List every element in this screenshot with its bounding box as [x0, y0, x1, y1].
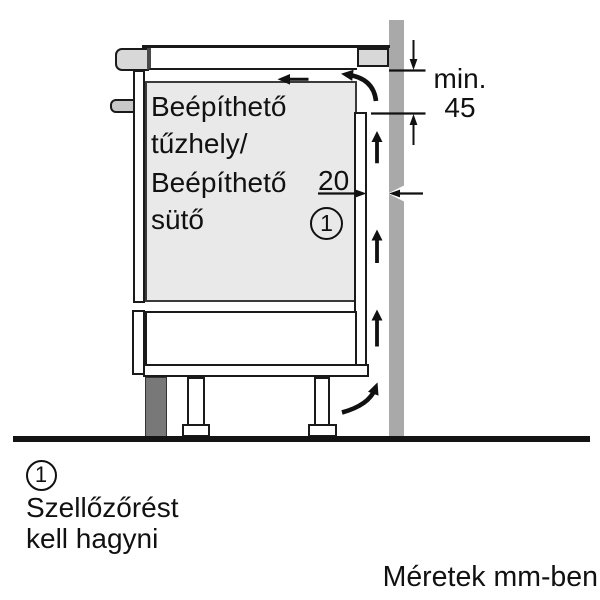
legend-callout-badge: 1	[26, 460, 57, 491]
airflow-curve-bottom-arrow	[342, 382, 379, 412]
callout-1-number: 1	[320, 210, 333, 237]
oven-label-line: sütő	[151, 202, 286, 239]
airflow-left-arrow	[278, 74, 309, 85]
dimension-min-45-label: min. 45	[425, 64, 495, 123]
dimension-20-label: 20	[318, 169, 349, 193]
legend-text-line: kell hagyni	[26, 524, 179, 555]
legend-text: Szellőzőrést kell hagyni	[26, 493, 179, 554]
dimension-45-lines	[371, 40, 426, 145]
airflow-curve-top-arrow	[341, 70, 376, 101]
oven-label-line: Beépíthető	[151, 165, 286, 202]
airflow-up-arrow-top	[372, 131, 383, 163]
airflow-up-arrow-bottom	[372, 310, 383, 347]
dimension-45-value: 45	[425, 93, 495, 123]
dimension-min-prefix: min.	[425, 64, 495, 94]
legend-callout-number: 1	[35, 462, 47, 488]
callout-1-badge: 1	[310, 207, 343, 240]
units-note: Méretek mm-ben	[383, 562, 598, 592]
installation-diagram: Beépíthető tűzhely/ Beépíthető sütő min.…	[0, 0, 600, 600]
oven-label: Beépíthető tűzhely/ Beépíthető sütő	[151, 89, 286, 238]
airflow-up-arrow-middle	[372, 230, 383, 264]
legend-text-line: Szellőzőrést	[26, 493, 179, 524]
oven-label-line: Beépíthető	[151, 89, 286, 126]
oven-label-line: tűzhely/	[151, 126, 286, 163]
